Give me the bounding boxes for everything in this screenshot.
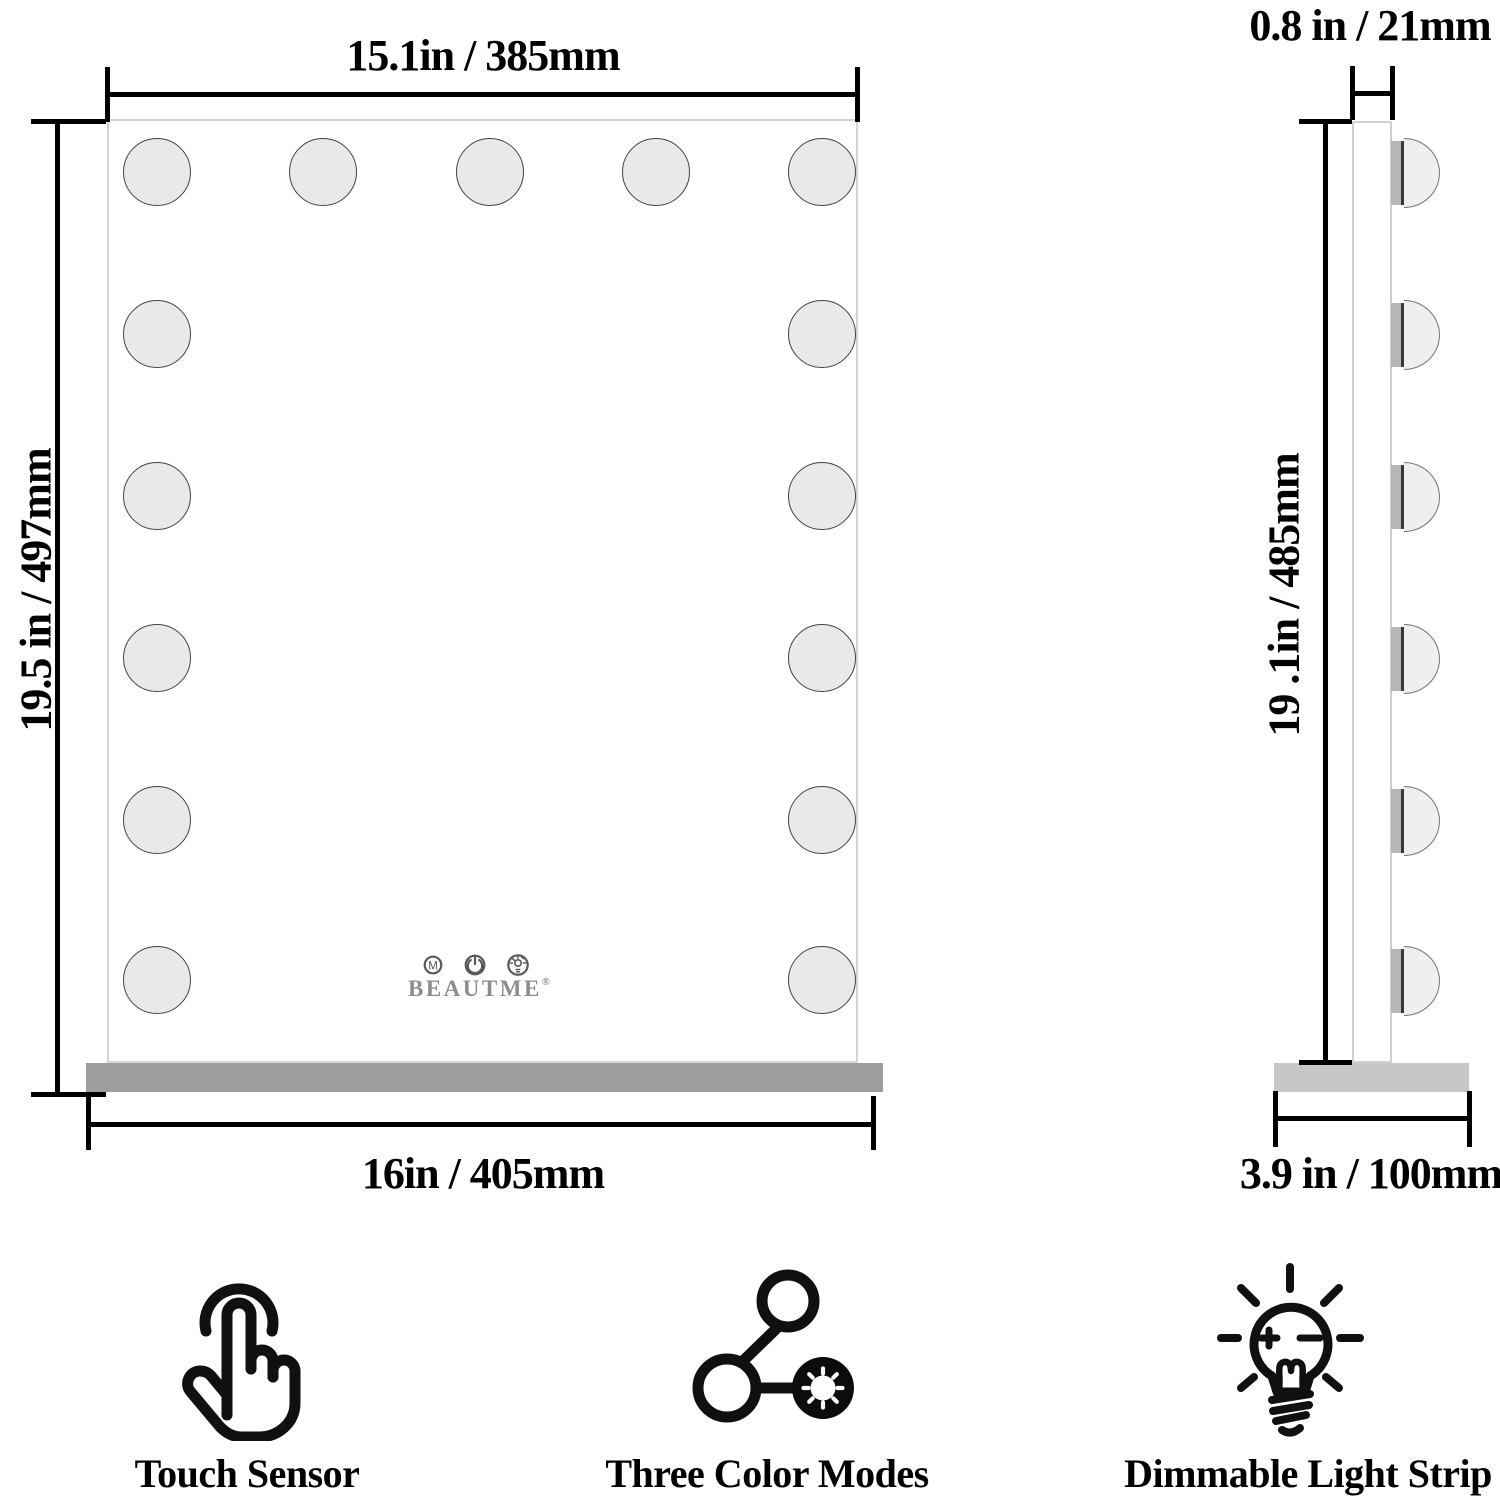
light-bulb-side [1404, 624, 1440, 694]
light-bulb [788, 624, 856, 692]
touch-sensor-icon [170, 1263, 305, 1441]
front-base-width-label: 16in / 405mm [362, 1148, 604, 1199]
front-height-label: 19.5 in / 497mm [11, 448, 62, 731]
light-bulb [788, 786, 856, 854]
light-bulb [123, 624, 191, 692]
light-bulb [788, 946, 856, 1014]
light-bulb [622, 138, 690, 206]
mirror-side-view [1352, 121, 1392, 1063]
mirror-front-view [107, 119, 858, 1063]
feature-label-dimmable-light-strip: Dimmable Light Strip [1124, 1450, 1492, 1497]
side-bottom-dim-line [1275, 1116, 1472, 1121]
front-bottom-dim-tick-right [871, 1096, 876, 1150]
side-left-dim-tick-bottom [1299, 1060, 1352, 1065]
front-width-label: 15.1in / 385mm [346, 30, 619, 81]
light-bulb-socket [1391, 465, 1404, 529]
side-left-dim-tick-top [1299, 119, 1352, 124]
light-bulb-side [1404, 946, 1440, 1016]
three-color-modes-icon [683, 1263, 855, 1425]
light-bulb [123, 462, 191, 530]
light-bulb [788, 138, 856, 206]
brand-logo: BEAUTME® [408, 976, 550, 1002]
light-bulb-socket [1391, 141, 1404, 205]
side-top-dim-line [1350, 91, 1395, 96]
light-bulb-socket [1391, 789, 1404, 853]
dimmable-light-strip-icon [1216, 1261, 1366, 1437]
light-bulb [123, 138, 191, 206]
light-bulb-socket [1391, 303, 1404, 367]
feature-label-touch-sensor: Touch Sensor [135, 1450, 360, 1497]
product-dimension-diagram: { "front_view": { "dim_width_top": "15.1… [0, 0, 1500, 1500]
front-top-dim-line [107, 92, 858, 97]
light-bulb [123, 946, 191, 1014]
front-bottom-dim-tick-left [86, 1096, 91, 1150]
light-bulb-socket [1391, 627, 1404, 691]
side-depth-label: 3.9 in / 100mm [1240, 1148, 1500, 1199]
light-bulb-side [1404, 786, 1440, 856]
mirror-base-front [86, 1063, 883, 1092]
light-bulb [456, 138, 524, 206]
side-height-label: 19 .1in / 485mm [1259, 453, 1310, 736]
registered-mark: ® [542, 976, 550, 988]
front-top-dim-tick-left [105, 67, 110, 122]
light-bulb [788, 300, 856, 368]
side-thickness-label: 0.8 in / 21mm [1249, 0, 1490, 51]
side-bottom-dim-tick-right [1467, 1091, 1472, 1147]
light-bulb [123, 786, 191, 854]
light-bulb [123, 300, 191, 368]
mode-letter: M [428, 960, 438, 972]
front-top-dim-tick-right [855, 67, 860, 122]
light-bulb [788, 462, 856, 530]
front-left-dim-tick-top [31, 119, 106, 124]
front-left-dim-tick-bottom [31, 1092, 106, 1097]
light-bulb [289, 138, 357, 206]
light-bulb-side [1404, 462, 1440, 532]
light-bulb-socket [1391, 949, 1404, 1013]
mirror-base-side [1274, 1063, 1469, 1092]
light-bulb-side [1404, 300, 1440, 370]
feature-label-three-color-modes: Three Color Modes [605, 1450, 928, 1497]
light-bulb-side [1404, 138, 1440, 208]
side-left-dim-line [1323, 121, 1328, 1065]
side-bottom-dim-tick-left [1273, 1091, 1278, 1147]
front-bottom-dim-line [88, 1122, 876, 1127]
